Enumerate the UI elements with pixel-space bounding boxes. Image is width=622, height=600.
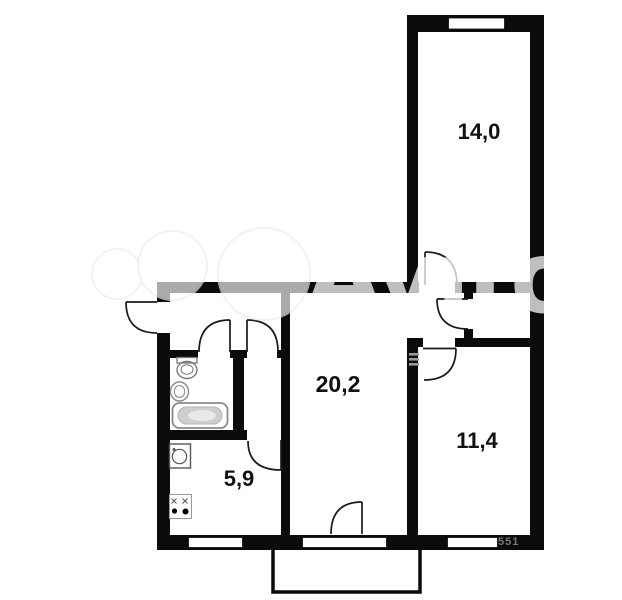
wall [407,338,423,347]
kitchen-sink [170,444,191,468]
wall [407,347,418,535]
bathtub [173,403,228,428]
toilet [177,358,197,379]
wall [464,329,473,338]
wall [157,333,170,550]
wall [170,350,198,358]
wall [170,430,247,440]
wall [455,282,532,293]
wall [455,338,532,347]
wall [157,282,170,302]
wall [233,350,244,440]
bedroom-right-door [423,349,456,381]
room-label-kitchen: 5,9 [189,468,289,490]
vent-hatch [409,353,419,366]
wash-basin [171,382,189,401]
closet-door [437,299,468,329]
wall [407,15,418,293]
wall [464,293,473,299]
window-bedroom-right [447,537,498,548]
wall [281,293,290,535]
window-bedroom-top [448,18,505,30]
window-kitchen [188,537,243,548]
passage-door [247,320,278,352]
bedroom-top-door [425,252,457,285]
plan-corner-note: 551 [498,536,519,548]
floor-plan-drawing [0,0,622,600]
stove [170,495,192,519]
room-label-bedroom-top: 14,0 [429,121,529,143]
balcony-outline [273,549,420,592]
balcony-door-unit [302,537,387,548]
room-label-bedroom-right: 11,4 [427,430,527,452]
bathroom-door [199,320,230,352]
room-label-living-room: 20,2 [288,373,388,396]
floor-plan: 14,0 20,2 11,4 5,9 551 Avito [0,0,622,600]
wall [157,282,419,293]
entrance-door [126,302,157,333]
balcony-door [331,502,362,534]
wall [530,15,544,550]
